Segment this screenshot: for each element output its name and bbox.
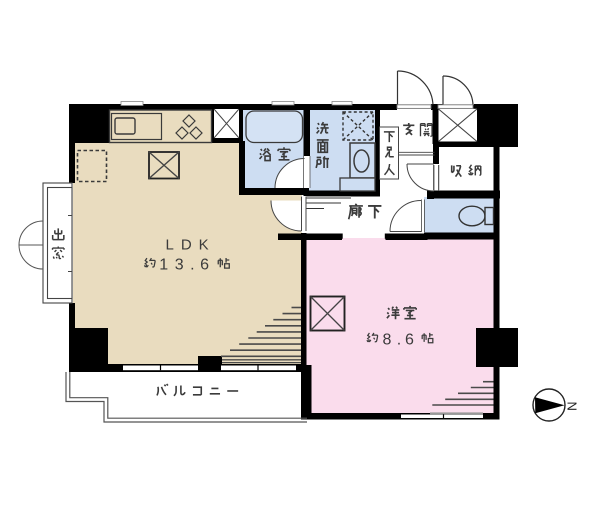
svg-text:.: . bbox=[190, 257, 194, 274]
svg-text:.: . bbox=[397, 331, 401, 348]
svg-text:1: 1 bbox=[159, 257, 168, 274]
svg-text:LDK: LDK bbox=[166, 237, 216, 254]
svg-text:N: N bbox=[565, 402, 580, 411]
svg-text:8: 8 bbox=[383, 331, 392, 348]
svg-text:3: 3 bbox=[175, 257, 184, 274]
svg-text:6: 6 bbox=[200, 257, 209, 274]
svg-text:6: 6 bbox=[405, 331, 414, 348]
